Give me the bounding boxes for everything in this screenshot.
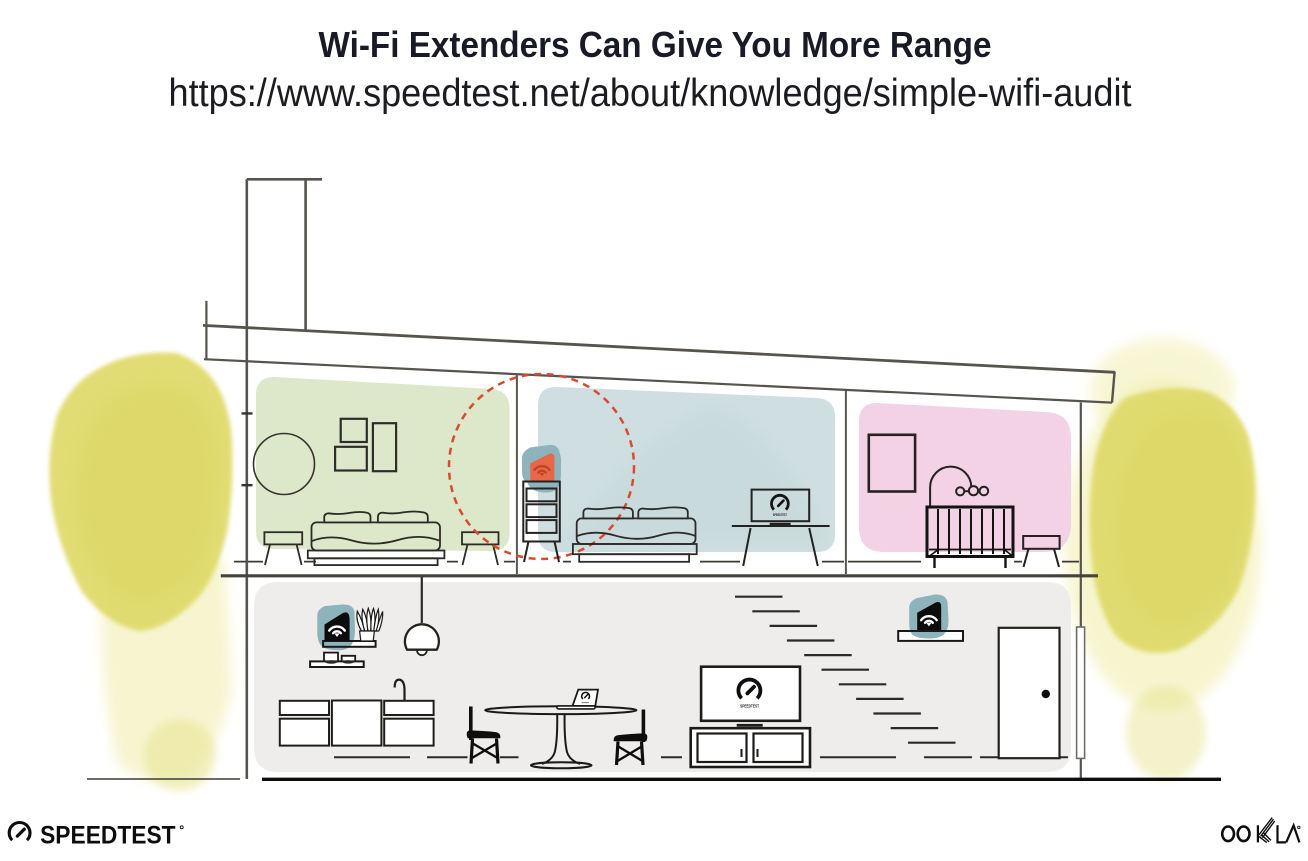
svg-text:SPEEDTEST: SPEEDTEST: [40, 822, 176, 850]
svg-text:Wi-Fi Extenders Can Give You M: Wi-Fi Extenders Can Give You More Range: [319, 24, 992, 65]
svg-text:SPEEDTEST: SPEEDTEST: [773, 513, 787, 517]
svg-text:SPEEDTEST: SPEEDTEST: [740, 704, 759, 709]
svg-text:https://www.speedtest.net/abou: https://www.speedtest.net/about/knowledg…: [169, 72, 1132, 115]
